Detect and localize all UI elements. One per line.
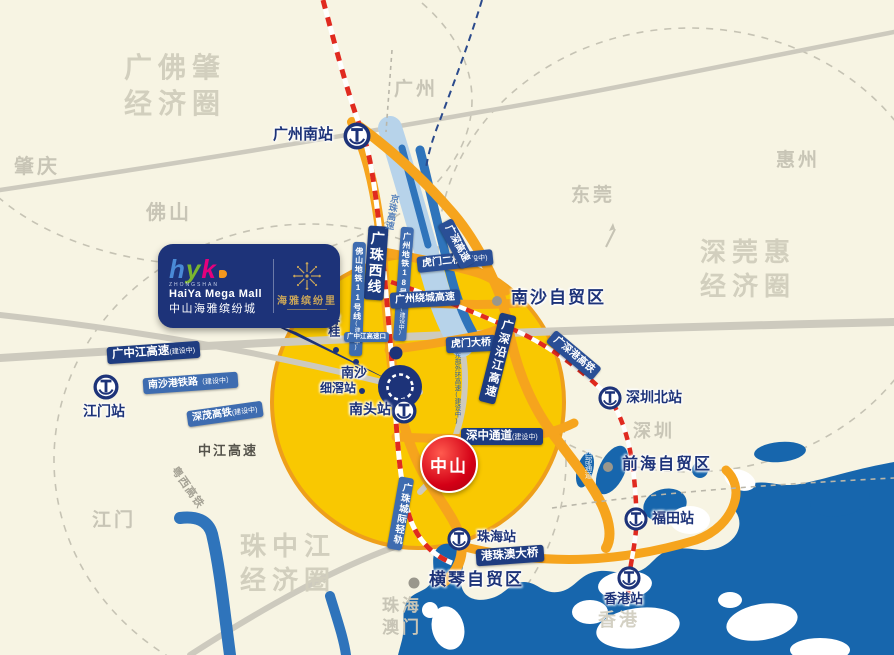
station-label-hongkong: 香港站: [604, 592, 643, 607]
road-text-eastern-outer-ring: 东部外环高速(建设中): [451, 352, 461, 425]
hyk-logo-letter-y: y: [186, 254, 201, 284]
region-label-guangfozhao: 广佛肇 经济圈: [95, 50, 255, 123]
guangzhou-south-station-icon: [345, 124, 368, 147]
station-label-futian: 福田站: [652, 510, 694, 526]
logo-subbrand: 海雅缤纷里: [274, 262, 340, 310]
location-map: 广佛肇 经济圈 深莞惠 经济圈 珠中江 经济圈 肇庆 佛山 广州 惠州 东莞 深…: [0, 0, 894, 655]
bridge-label-humen: 虎门大桥: [446, 335, 497, 353]
road-label-gzj-interchange: 广中江高速口: [344, 332, 389, 342]
city-label-hongkong: 香港: [598, 610, 640, 631]
station-label-jiangmen: 江门站: [83, 403, 125, 419]
station-label-nantou: 南头站: [349, 401, 391, 417]
zhongshan-badge: 中山: [420, 435, 478, 493]
starburst-icon: [293, 262, 321, 290]
city-label-shenzhen: 深圳: [633, 421, 675, 442]
shenzhen-north-station-icon: [600, 388, 620, 408]
subbrand-name: 海雅缤纷里: [277, 292, 337, 307]
zone-label-nansha: 南沙自贸区: [511, 288, 606, 308]
road-text-zhongjiang-expressway: 中江高速: [198, 440, 258, 459]
hyk-logo-accent: [219, 270, 227, 278]
project-logo-card: hyk ZHONGSHAN HaiYa Mega Mall 中山海雅缤纷城: [158, 244, 340, 328]
city-label-dongguan: 东莞: [571, 185, 615, 207]
futian-station-icon: [626, 509, 646, 529]
zone-label-hengqin: 横琴自贸区: [429, 570, 524, 590]
hyk-logo-letter-k: k: [201, 254, 216, 284]
road-label-shenzhong-corridor: 深中通道(建设中): [461, 428, 543, 445]
city-label-zhuhai-macau: 珠海 澳门: [382, 595, 422, 639]
logo-main: hyk ZHONGSHAN HaiYa Mega Mall 中山海雅缤纷城: [158, 250, 273, 322]
city-label-zhaoqing: 肇庆: [14, 156, 60, 179]
zone-label-qianhai: 前海自贸区: [622, 456, 712, 474]
brand-name-cn: 中山海雅缤纷城: [169, 300, 273, 316]
brand-name-en: HaiYa Mega Mall: [169, 288, 273, 300]
hongkong-station-icon: [619, 568, 639, 588]
zhuhai-station-icon: [449, 529, 469, 549]
city-label-huizhou: 惠州: [776, 150, 820, 172]
station-label-shenzhen-north: 深圳北站: [626, 389, 682, 405]
road-text-western-corridor: 西部通道: [583, 449, 594, 479]
station-label-guangzhou-south: 广州南站: [273, 126, 333, 143]
region-label-zhuzhongjiang: 珠中江 经济圈: [208, 530, 368, 598]
hyk-logo-letter-h: h: [169, 254, 186, 284]
hyk-logo: hyk: [169, 256, 273, 282]
station-label-xijiao: 细滘站: [320, 382, 356, 396]
town-label-nansha: 南沙: [341, 366, 367, 381]
jiangmen-station-icon: [95, 376, 117, 398]
city-label-foshan: 佛山: [146, 202, 192, 225]
city-label-jiangmen: 江门: [92, 510, 136, 532]
nantou-station-icon: [393, 400, 415, 422]
city-label-guangzhou: 广州: [394, 79, 438, 101]
region-label-shenwanhui: 深莞惠 经济圈: [668, 236, 828, 304]
zhongshan-badge-label: 中山: [430, 452, 468, 477]
station-label-zhuhai: 珠海站: [477, 530, 516, 545]
subbrand-rule: [287, 309, 327, 310]
